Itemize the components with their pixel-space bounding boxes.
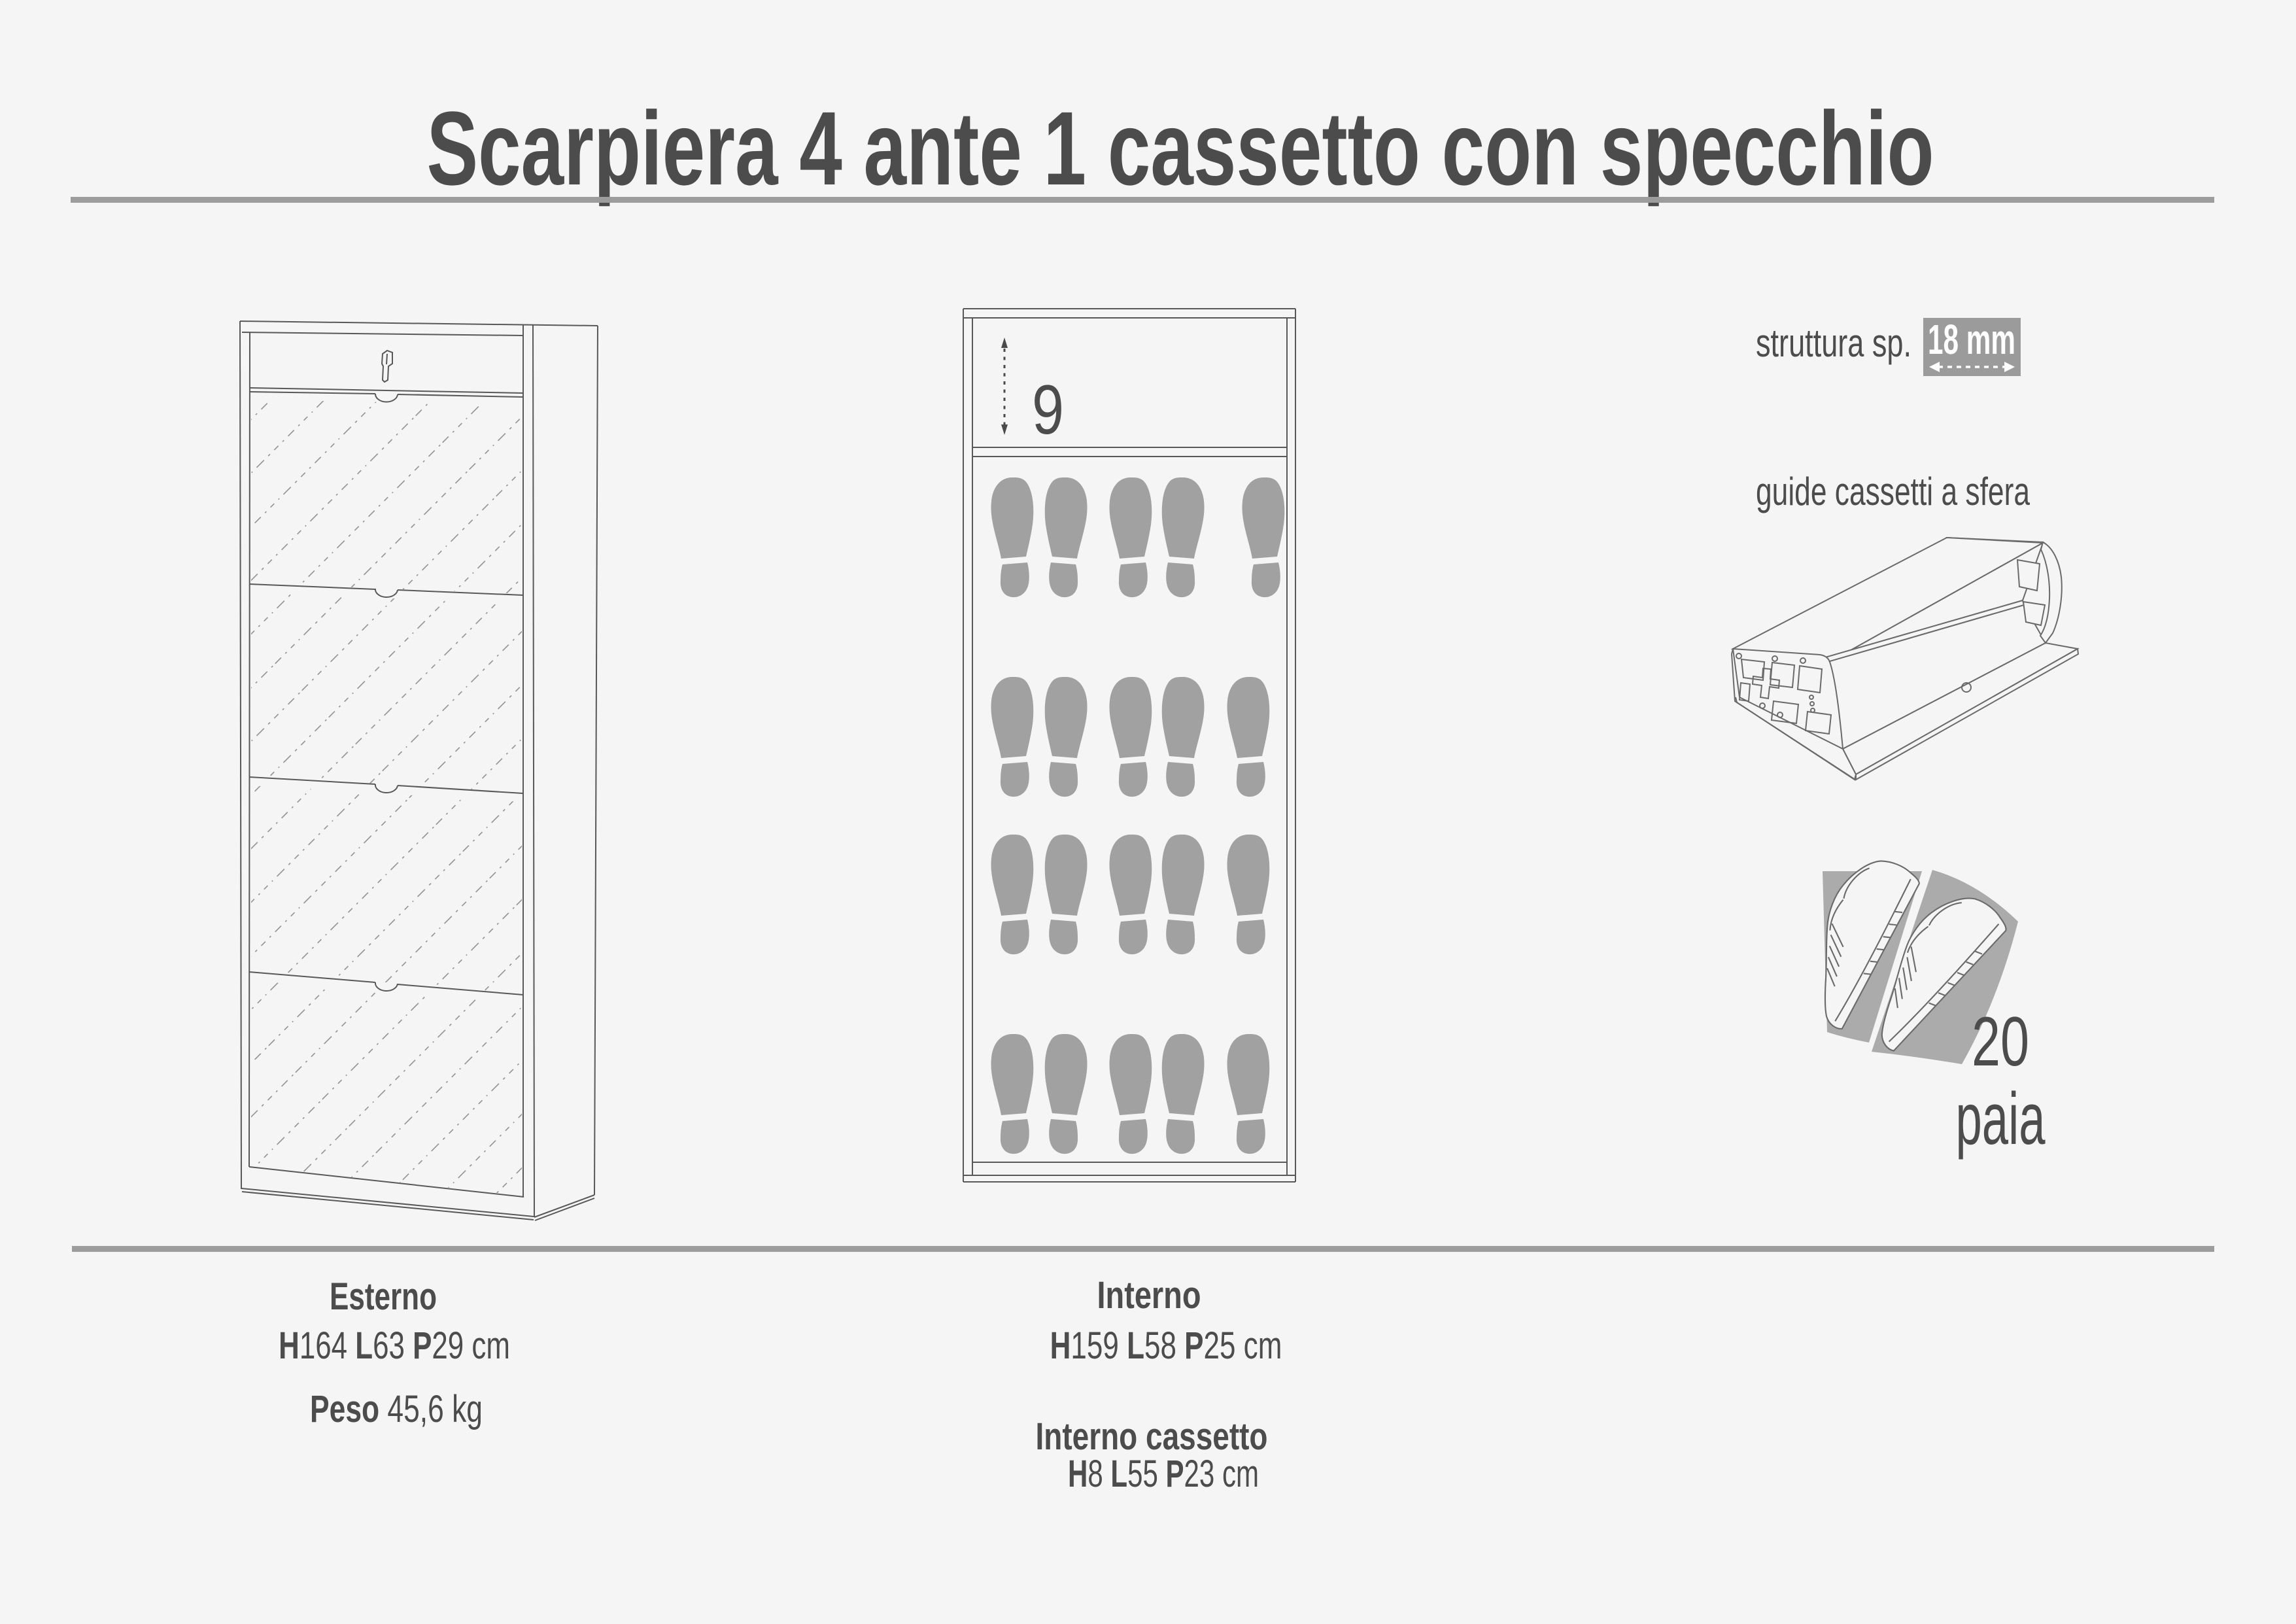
svg-text:Scarpiera 4 ante 1 cassetto co: Scarpiera 4 ante 1 cassetto con specchio [427,90,1934,207]
svg-text:Esterno: Esterno [330,1275,437,1318]
svg-text:Interno cassetto: Interno cassetto [1036,1415,1268,1458]
svg-text:20: 20 [1972,1002,2029,1080]
svg-text:H159 L58 P25 cm: H159 L58 P25 cm [1050,1324,1282,1366]
svg-text:H164 L63 P29 cm: H164 L63 P29 cm [279,1324,510,1366]
svg-text:paia: paia [1956,1078,2046,1160]
svg-text:9: 9 [1032,370,1064,449]
svg-text:Peso 45,6 kg: Peso 45,6 kg [310,1387,483,1430]
svg-text:guide cassetti a sfera: guide cassetti a sfera [1756,470,2030,513]
svg-text:H8 L55 P23 cm: H8 L55 P23 cm [1068,1452,1259,1494]
svg-text:Interno: Interno [1097,1274,1201,1317]
svg-text:18 mm: 18 mm [1928,316,2015,363]
svg-text:struttura sp.: struttura sp. [1756,321,1911,365]
